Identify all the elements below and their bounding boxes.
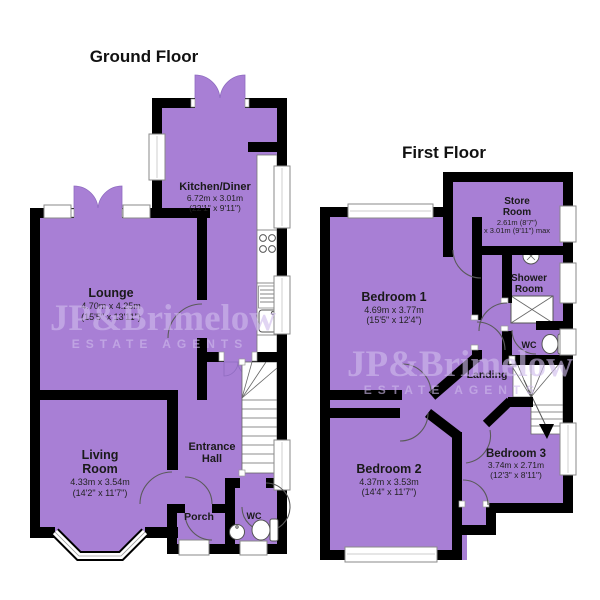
shower-room-label-1: Shower [511, 273, 547, 284]
bedroom3-imperial: (12'3" x 8'11") [490, 470, 542, 480]
living-room-label-2: Room [82, 462, 117, 476]
kitchen-label: Kitchen/Diner [179, 181, 251, 193]
floorplan-page: Ground Floor Kitchen/Diner 6.72m x 3.01m… [0, 0, 600, 600]
ground-floor-title: Ground Floor [90, 47, 199, 66]
first-floor-title: First Floor [402, 143, 486, 162]
watermark-ground: JP&Brimelow ESTATE AGENTS [50, 298, 276, 351]
ground-wc-label: WC [247, 511, 262, 521]
store-room-metric2: x 3.01m (9'11") max [484, 226, 550, 235]
kitchen-imperial: (22'1" x 9'11") [189, 203, 241, 213]
watermark-tagline-text: ESTATE AGENTS [364, 383, 540, 397]
bedroom1-label: Bedroom 1 [361, 290, 426, 304]
watermark-brand-text: JP&Brimelow [347, 344, 573, 385]
entrance-hall-label-2: Hall [202, 453, 222, 465]
front-door-threshold [179, 540, 209, 555]
ground-stairs [239, 359, 277, 476]
shower-room-label-2: Room [515, 284, 543, 295]
bedroom3-metric: 3.74m x 2.71m [488, 460, 544, 470]
living-room-label-1: Living [82, 448, 119, 462]
bedroom2-label: Bedroom 2 [356, 462, 421, 476]
watermark-brand-text: JP&Brimelow [50, 298, 276, 339]
bedroom1-metric: 4.69m x 3.77m [364, 305, 424, 315]
store-room-label-1: Store [504, 196, 530, 207]
living-room-metric: 4.33m x 3.54m [70, 477, 130, 487]
watermark-tagline-text: ESTATE AGENTS [72, 337, 248, 351]
floorplan-canvas: Ground Floor Kitchen/Diner 6.72m x 3.01m… [0, 0, 600, 600]
toilet-icon [252, 519, 278, 541]
shower-tray-icon [511, 296, 553, 323]
living-room-imperial: (14'2" x 11'7") [73, 488, 128, 498]
bedroom2-metric: 4.37m x 3.53m [359, 477, 419, 487]
bedroom1-imperial: (15'5" x 12'4") [366, 315, 421, 325]
bedroom2-imperial: (14'4" x 11'7") [362, 487, 417, 497]
watermark-first: JP&Brimelow ESTATE AGENTS [347, 344, 573, 397]
porch-label: Porch [184, 511, 214, 523]
bedroom3-label: Bedroom 3 [486, 448, 546, 460]
kitchen-metric: 6.72m x 3.01m [187, 193, 243, 203]
store-room-label-2: Room [503, 207, 531, 218]
entrance-hall-label-1: Entrance [188, 441, 235, 453]
basin-icon [230, 525, 245, 540]
